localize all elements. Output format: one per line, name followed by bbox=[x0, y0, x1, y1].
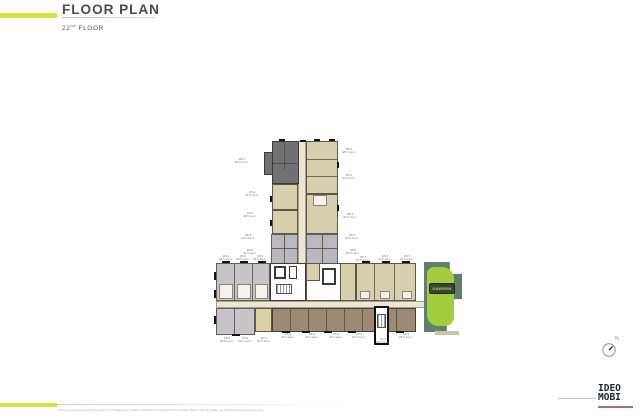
wall-line bbox=[272, 248, 298, 249]
garden-edge bbox=[435, 331, 459, 335]
wall-line bbox=[362, 308, 363, 332]
unit-beige-left-2 bbox=[272, 210, 298, 234]
unit-beige-top-right bbox=[306, 141, 338, 194]
wall-line bbox=[307, 159, 337, 160]
wall-line bbox=[307, 176, 337, 177]
unit-room bbox=[360, 291, 370, 299]
wall-line bbox=[284, 234, 285, 264]
service-shaft bbox=[322, 268, 336, 285]
unit-label: 1B-6 26.5 sq.m. bbox=[250, 255, 270, 262]
wall-line bbox=[394, 263, 395, 301]
unit-label: 2B-1 55.0 sq.m. bbox=[232, 158, 252, 165]
garden-label: GARDEN bbox=[429, 283, 455, 294]
unit-label: 1B-9 26.0 sq.m. bbox=[302, 333, 322, 340]
unit-label: 1B-3 31.0 sq.m. bbox=[238, 234, 258, 241]
wall-line bbox=[326, 308, 327, 332]
logo-line-2: MOBI bbox=[598, 394, 621, 403]
unit-label: 1B-9 26.0 sq.m. bbox=[326, 333, 346, 340]
footer-divider bbox=[57, 404, 352, 405]
unit-label: 1B-2 34.5 sq.m. bbox=[240, 212, 260, 219]
wall-tick bbox=[337, 162, 339, 168]
floor-plan-drawing: GARDEN 2B-1 55.0 sq.m. 1B-2 34.5 sq.m. 1… bbox=[0, 0, 640, 419]
wall-tick bbox=[329, 139, 335, 141]
wall-tick bbox=[214, 272, 216, 280]
wall-tick bbox=[314, 139, 320, 141]
wall-tick bbox=[214, 316, 216, 324]
north-label: N bbox=[615, 336, 619, 342]
wall-tick bbox=[232, 334, 240, 336]
compass-svg bbox=[601, 342, 617, 358]
unit-label: 1B-4 30.5 sq.m. bbox=[339, 174, 359, 181]
wall-tick bbox=[279, 139, 285, 141]
unit-label: ST-2 24.5 sq.m. bbox=[254, 337, 274, 344]
wall-tick bbox=[300, 140, 306, 142]
wall-tick bbox=[270, 220, 272, 226]
unit-beige-mid-small bbox=[306, 263, 320, 281]
wall-line bbox=[308, 308, 309, 332]
elevator-shaft bbox=[289, 266, 297, 279]
wall-tick bbox=[337, 205, 339, 211]
wall-line bbox=[284, 142, 285, 170]
floor-plan-slide: FLOOR PLAN 22nd FLOOR bbox=[0, 0, 640, 419]
wall-line bbox=[396, 308, 397, 332]
corridor-horizontal bbox=[216, 301, 426, 308]
logo-tagline bbox=[598, 406, 633, 408]
elevator-shaft bbox=[274, 266, 286, 279]
unit-room bbox=[255, 284, 268, 299]
wall-line bbox=[344, 308, 345, 332]
unit-label: 2B-2 48.5 sq.m. bbox=[339, 148, 359, 155]
unit-room bbox=[380, 291, 390, 299]
logo-divider bbox=[558, 398, 596, 399]
unit-label: 1B-9 26.0 sq.m. bbox=[278, 333, 298, 340]
compass-icon bbox=[601, 342, 617, 363]
unit-room bbox=[402, 291, 412, 299]
unit-beige-left-1 bbox=[272, 184, 298, 210]
wall-line bbox=[234, 308, 235, 335]
unit-room bbox=[219, 284, 233, 299]
wall-line bbox=[252, 263, 253, 301]
wall-line bbox=[374, 263, 375, 301]
unit-label: 1B-9 26.0 sq.m. bbox=[396, 333, 416, 340]
wall-tick bbox=[270, 196, 272, 202]
disclaimer-text: The company reserves the right to change… bbox=[58, 408, 264, 412]
lift-lobby bbox=[313, 195, 327, 206]
stairs bbox=[276, 284, 292, 294]
unit-label: 1B-7 27.0 sq.m. bbox=[375, 255, 395, 262]
unit-label: 1B-5 29.5 sq.m. bbox=[342, 234, 362, 241]
wing-lower-left-units bbox=[216, 308, 255, 335]
unit-label: 1B-9 26.0 sq.m. bbox=[349, 333, 369, 340]
wall-tick bbox=[214, 290, 216, 298]
unit-label: 1B-7 27.0 sq.m. bbox=[397, 255, 417, 262]
unit-khaki bbox=[255, 308, 272, 332]
unit-beige-mid bbox=[340, 263, 356, 301]
unit-label: 1B-2 34.5 sq.m. bbox=[242, 191, 262, 198]
wall-line bbox=[273, 163, 298, 164]
wall-line bbox=[290, 308, 291, 332]
garden-lawn bbox=[427, 267, 454, 326]
unit-label: ST-1 22.5 sq.m. bbox=[353, 256, 373, 263]
wall-line bbox=[234, 263, 235, 301]
unit-label: 1B-4 30.5 sq.m. bbox=[340, 213, 360, 220]
unit-room bbox=[237, 284, 251, 299]
stairs bbox=[377, 314, 386, 328]
footer-accent-bar bbox=[0, 403, 57, 407]
unit-label: 1B-8 26.5 sq.m. bbox=[217, 337, 237, 344]
unit-dark-gray-wing bbox=[264, 152, 273, 175]
unit-label: 1B-8 26.5 sq.m. bbox=[235, 337, 255, 344]
wall-line bbox=[322, 234, 323, 264]
brand-logo: IDEO MOBI bbox=[598, 385, 621, 402]
unit-label: ST-3 22.0 sq.m. bbox=[373, 338, 393, 345]
